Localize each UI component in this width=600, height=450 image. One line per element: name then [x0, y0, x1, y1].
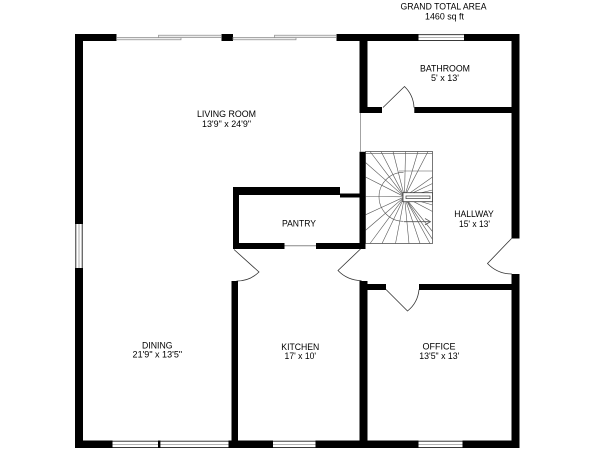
svg-text:1460 sq ft: 1460 sq ft: [425, 11, 465, 21]
svg-text:5' x 13': 5' x 13': [431, 73, 459, 83]
svg-text:LIVING ROOM: LIVING ROOM: [197, 109, 256, 119]
svg-text:GRAND TOTAL AREA: GRAND TOTAL AREA: [401, 1, 487, 11]
svg-text:13'5" x 13': 13'5" x 13': [419, 351, 459, 361]
svg-text:15' x 13': 15' x 13': [459, 219, 490, 229]
svg-text:HALLWAY: HALLWAY: [454, 209, 494, 219]
svg-text:PANTRY: PANTRY: [282, 218, 316, 228]
svg-text:17' x 10': 17' x 10': [285, 351, 317, 361]
svg-text:21'9" x 13'5": 21'9" x 13'5": [133, 350, 183, 360]
svg-text:13'9" x 24'9": 13'9" x 24'9": [202, 119, 251, 129]
